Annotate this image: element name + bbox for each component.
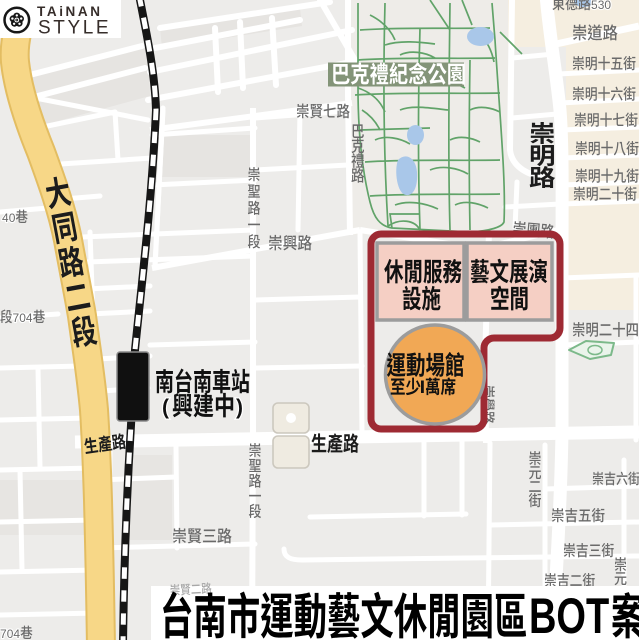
svg-text:BOT: BOT: [529, 589, 609, 640]
svg-text:0: 0: [604, 0, 611, 12]
svg-text:0: 0: [9, 211, 16, 225]
svg-text:4: 4: [26, 311, 33, 325]
svg-text:): ): [236, 396, 243, 419]
svg-text:4: 4: [13, 627, 20, 640]
svg-text:STYLE: STYLE: [38, 18, 111, 39]
svg-text:(: (: [162, 396, 169, 419]
